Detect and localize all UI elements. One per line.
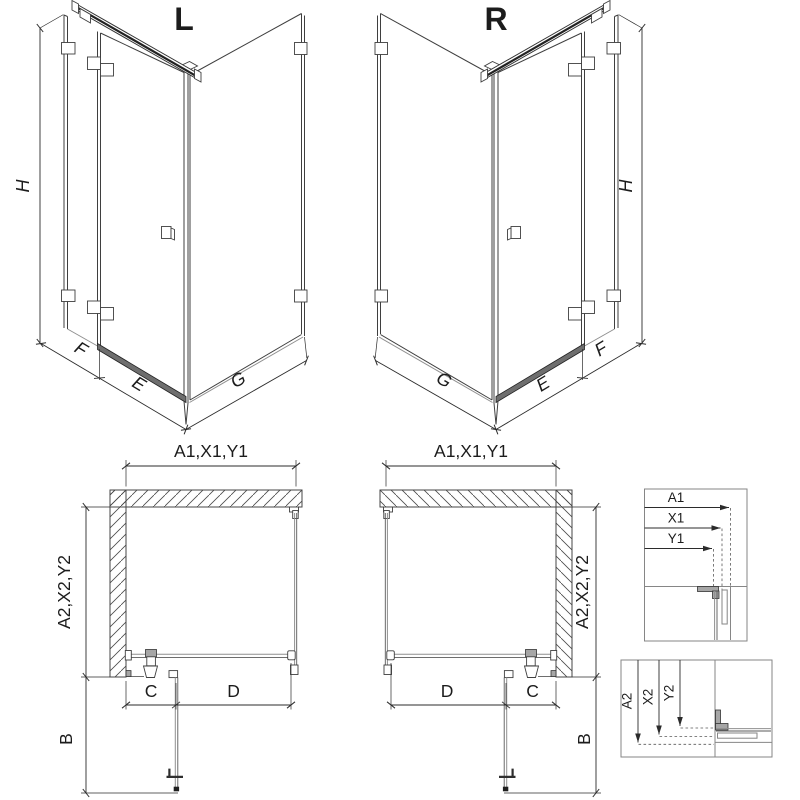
dim-label-b-right: B: [574, 733, 594, 745]
view-label-left: L: [174, 1, 194, 37]
detail-width-profile-bar: [722, 590, 727, 624]
dim-label-g-left: G: [227, 368, 249, 392]
dim-label-g-right: G: [433, 368, 455, 392]
technical-drawing-page: L H F E G R H F E G A1,X1,Y1 A2,X2,Y2 B …: [0, 0, 800, 800]
enclosure-3d-right: [375, 1, 642, 430]
plan-view-left: A1,X1,Y1 A2,X2,Y2 B C D: [54, 441, 302, 793]
enclosure-plan-left: [81, 460, 302, 793]
detail-depth-profile-bar: [718, 733, 758, 738]
plan-view-right: A1,X1,Y1 A2,X2,Y2 B D C: [380, 441, 601, 793]
detail-box-depth: A2 X2 Y2: [620, 660, 773, 757]
view-label-right: R: [484, 1, 507, 37]
detail-label-x1: X1: [668, 511, 685, 526]
dim-label-d-left: D: [227, 681, 240, 701]
detail-label-y2: Y2: [662, 685, 677, 702]
enclosure-plan-right: [380, 460, 601, 793]
dim-label-d-right: D: [441, 681, 454, 701]
detail-label-x2: X2: [641, 689, 656, 706]
dim-label-c-right: C: [526, 681, 539, 701]
dim-label-depth-left: A2,X2,Y2: [54, 555, 74, 629]
detail-label-y1: Y1: [668, 531, 685, 546]
dim-label-h-left: H: [13, 179, 33, 193]
detail-label-a1: A1: [668, 490, 685, 505]
enclosure-3d-left: [40, 1, 307, 430]
detail-width-frame: [645, 489, 748, 641]
detail-width-bracket-hook: [713, 591, 720, 599]
shower-enclosure-technical-drawing: L H F E G R H F E G A1,X1,Y1 A2,X2,Y2 B …: [0, 0, 800, 800]
dim-label-width-left: A1,X1,Y1: [174, 441, 248, 461]
dim-label-h-right: H: [616, 179, 636, 193]
dim-label-b-left: B: [56, 733, 76, 745]
view-3d-right: R H F E G: [375, 1, 642, 430]
detail-label-a2: A2: [620, 693, 635, 710]
dim-label-f-left: F: [71, 337, 92, 360]
dim-label-c-left: C: [145, 681, 158, 701]
view-3d-left: L H F E G: [13, 1, 307, 430]
dim-label-width-right: A1,X1,Y1: [434, 441, 508, 461]
dim-label-depth-right: A2,X2,Y2: [572, 555, 592, 629]
dim-label-f-right: F: [591, 337, 612, 360]
detail-box-width: A1 X1 Y1: [645, 489, 748, 641]
